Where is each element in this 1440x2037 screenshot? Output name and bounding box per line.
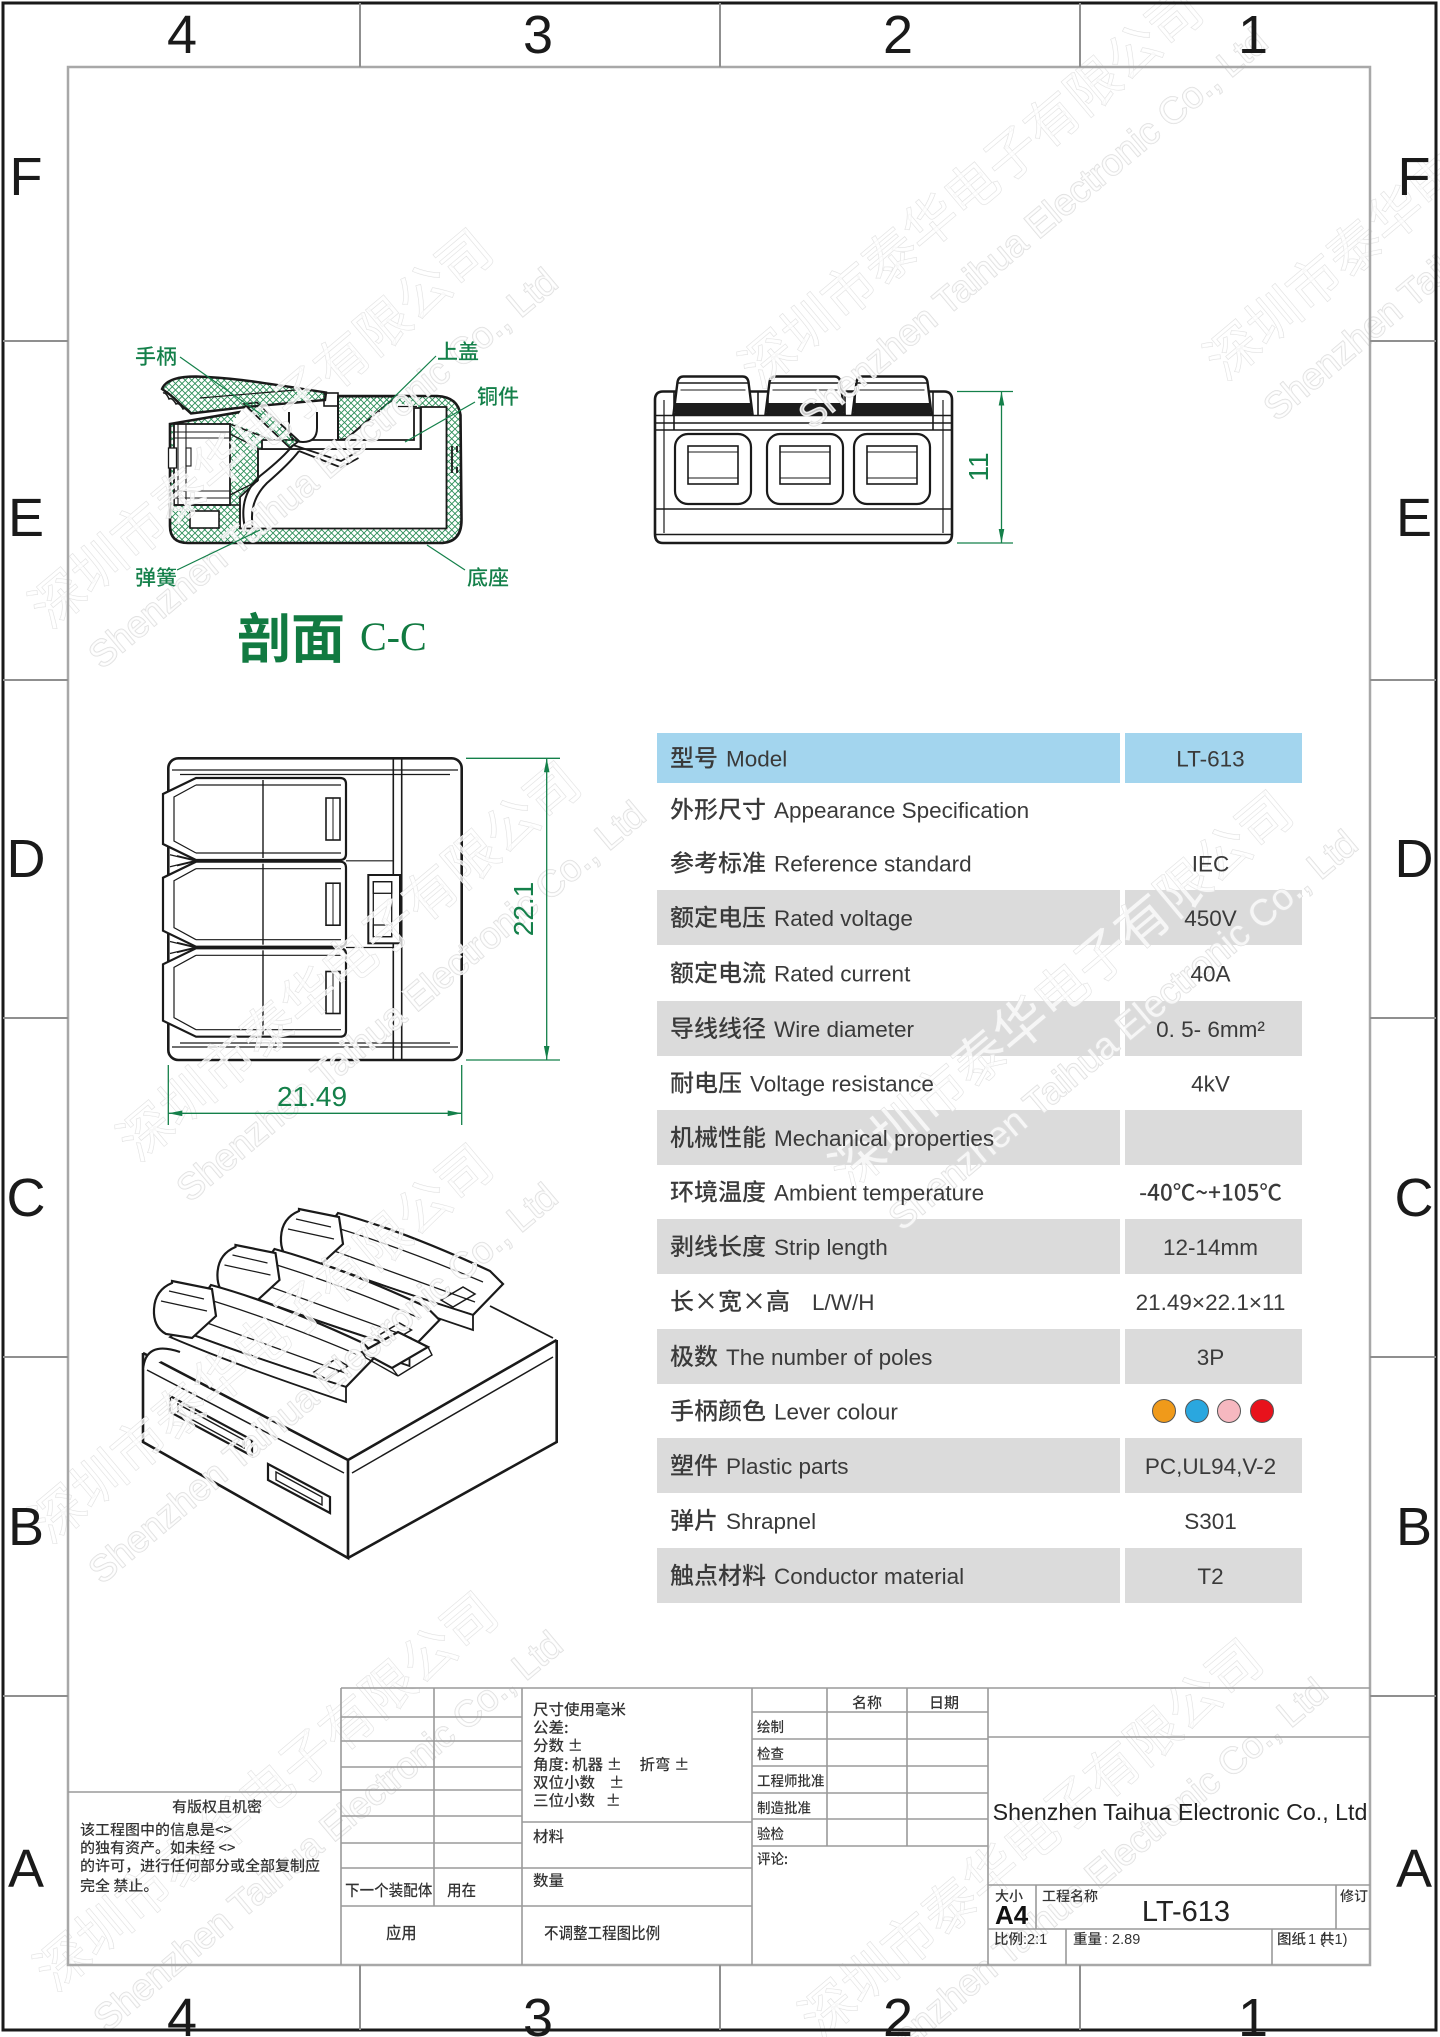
svg-text:Strip length: Strip length <box>774 1235 888 1260</box>
svg-text:Shenzhen Taihua Electronic Co.: Shenzhen Taihua Electronic Co., Ltd <box>851 1670 1335 2037</box>
svg-text:A: A <box>1396 1839 1432 1899</box>
svg-text:4: 4 <box>167 5 197 65</box>
svg-text:F: F <box>10 147 43 207</box>
svg-text:PC,UL94,V-2: PC,UL94,V-2 <box>1145 1454 1276 1479</box>
svg-text:A: A <box>8 1839 44 1899</box>
svg-text:40A: 40A <box>1190 962 1230 987</box>
svg-text:Shenzhen Taihua Electronic Co.: Shenzhen Taihua Electronic Co., Ltd <box>81 260 565 676</box>
svg-text:The number of poles: The number of poles <box>726 1345 932 1370</box>
svg-text:Plastic parts: Plastic parts <box>726 1454 849 1479</box>
svg-text:C-C: C-C <box>360 614 427 659</box>
svg-text:D: D <box>7 829 46 889</box>
svg-text:B: B <box>1396 1497 1432 1557</box>
svg-text:Shenzhen Taihua Electronic Co.: Shenzhen Taihua Electronic Co., Ltd <box>791 20 1275 436</box>
svg-text:3P: 3P <box>1197 1345 1225 1370</box>
svg-text:E: E <box>1396 488 1432 548</box>
svg-text:3: 3 <box>523 1988 553 2037</box>
svg-text:Ambient temperature: Ambient temperature <box>774 1181 984 1206</box>
svg-text:2: 2 <box>883 1988 913 2037</box>
svg-text:S301: S301 <box>1184 1509 1237 1534</box>
svg-text::2:1: :2:1 <box>1023 1932 1047 1948</box>
svg-text:4kV: 4kV <box>1191 1072 1230 1097</box>
svg-text:B: B <box>8 1497 44 1557</box>
svg-text:3: 3 <box>523 5 553 65</box>
svg-text:T2: T2 <box>1197 1564 1223 1589</box>
svg-text:LT-613: LT-613 <box>1176 747 1244 772</box>
svg-text:LT-613: LT-613 <box>1142 1896 1230 1928</box>
svg-text:C: C <box>1395 1168 1434 1228</box>
svg-text:Mechanical properties: Mechanical properties <box>774 1126 994 1151</box>
svg-text:Model: Model <box>726 747 787 772</box>
svg-text:C: C <box>7 1168 46 1228</box>
svg-text:Shenzhen Taihua Electronic Co.: Shenzhen Taihua Electronic Co., Ltd <box>993 1799 1368 1825</box>
svg-text:4: 4 <box>167 1988 197 2037</box>
svg-text:A4: A4 <box>995 1900 1029 1930</box>
svg-text:450V: 450V <box>1184 906 1237 931</box>
svg-text:Shenzhen Taihua Electronic Co.: Shenzhen Taihua Electronic Co., Ltd <box>86 1623 570 2037</box>
svg-text:Shenzhen Taihua Electronic Co.: Shenzhen Taihua Electronic Co., Ltd <box>1256 12 1440 428</box>
svg-text:Rated current: Rated current <box>774 962 911 987</box>
svg-text:Wire diameter: Wire diameter <box>774 1017 915 1042</box>
svg-text:Appearance Specification: Appearance Specification <box>774 798 1029 823</box>
svg-text:Conductor material: Conductor material <box>774 1564 964 1589</box>
svg-text:Rated voltage: Rated voltage <box>774 906 913 931</box>
svg-text:1: 1 <box>1238 5 1268 65</box>
svg-text:1): 1) <box>1335 1932 1348 1948</box>
svg-text:IEC: IEC <box>1192 852 1230 877</box>
svg-text:1: 1 <box>1238 1988 1268 2037</box>
svg-text:D: D <box>1395 829 1434 889</box>
svg-text:11: 11 <box>963 452 994 481</box>
svg-text:Reference standard: Reference standard <box>774 852 972 877</box>
svg-text:Shrapnel: Shrapnel <box>726 1509 816 1534</box>
svg-text:L/W/H: L/W/H <box>812 1290 875 1315</box>
svg-text:22.1: 22.1 <box>508 882 539 937</box>
svg-text:21.49: 21.49 <box>277 1081 347 1112</box>
svg-text:12-14mm: 12-14mm <box>1163 1235 1258 1260</box>
svg-text:21.49×22.1×11: 21.49×22.1×11 <box>1136 1290 1286 1315</box>
svg-text:Voltage resistance: Voltage resistance <box>750 1072 934 1097</box>
svg-text:E: E <box>8 488 44 548</box>
svg-text:0. 5- 6mm²: 0. 5- 6mm² <box>1156 1017 1265 1042</box>
svg-text:F: F <box>1398 147 1431 207</box>
svg-text:Lever colour: Lever colour <box>774 1400 898 1425</box>
svg-text:: 2.89: : 2.89 <box>1104 1932 1140 1948</box>
svg-text:2: 2 <box>883 5 913 65</box>
